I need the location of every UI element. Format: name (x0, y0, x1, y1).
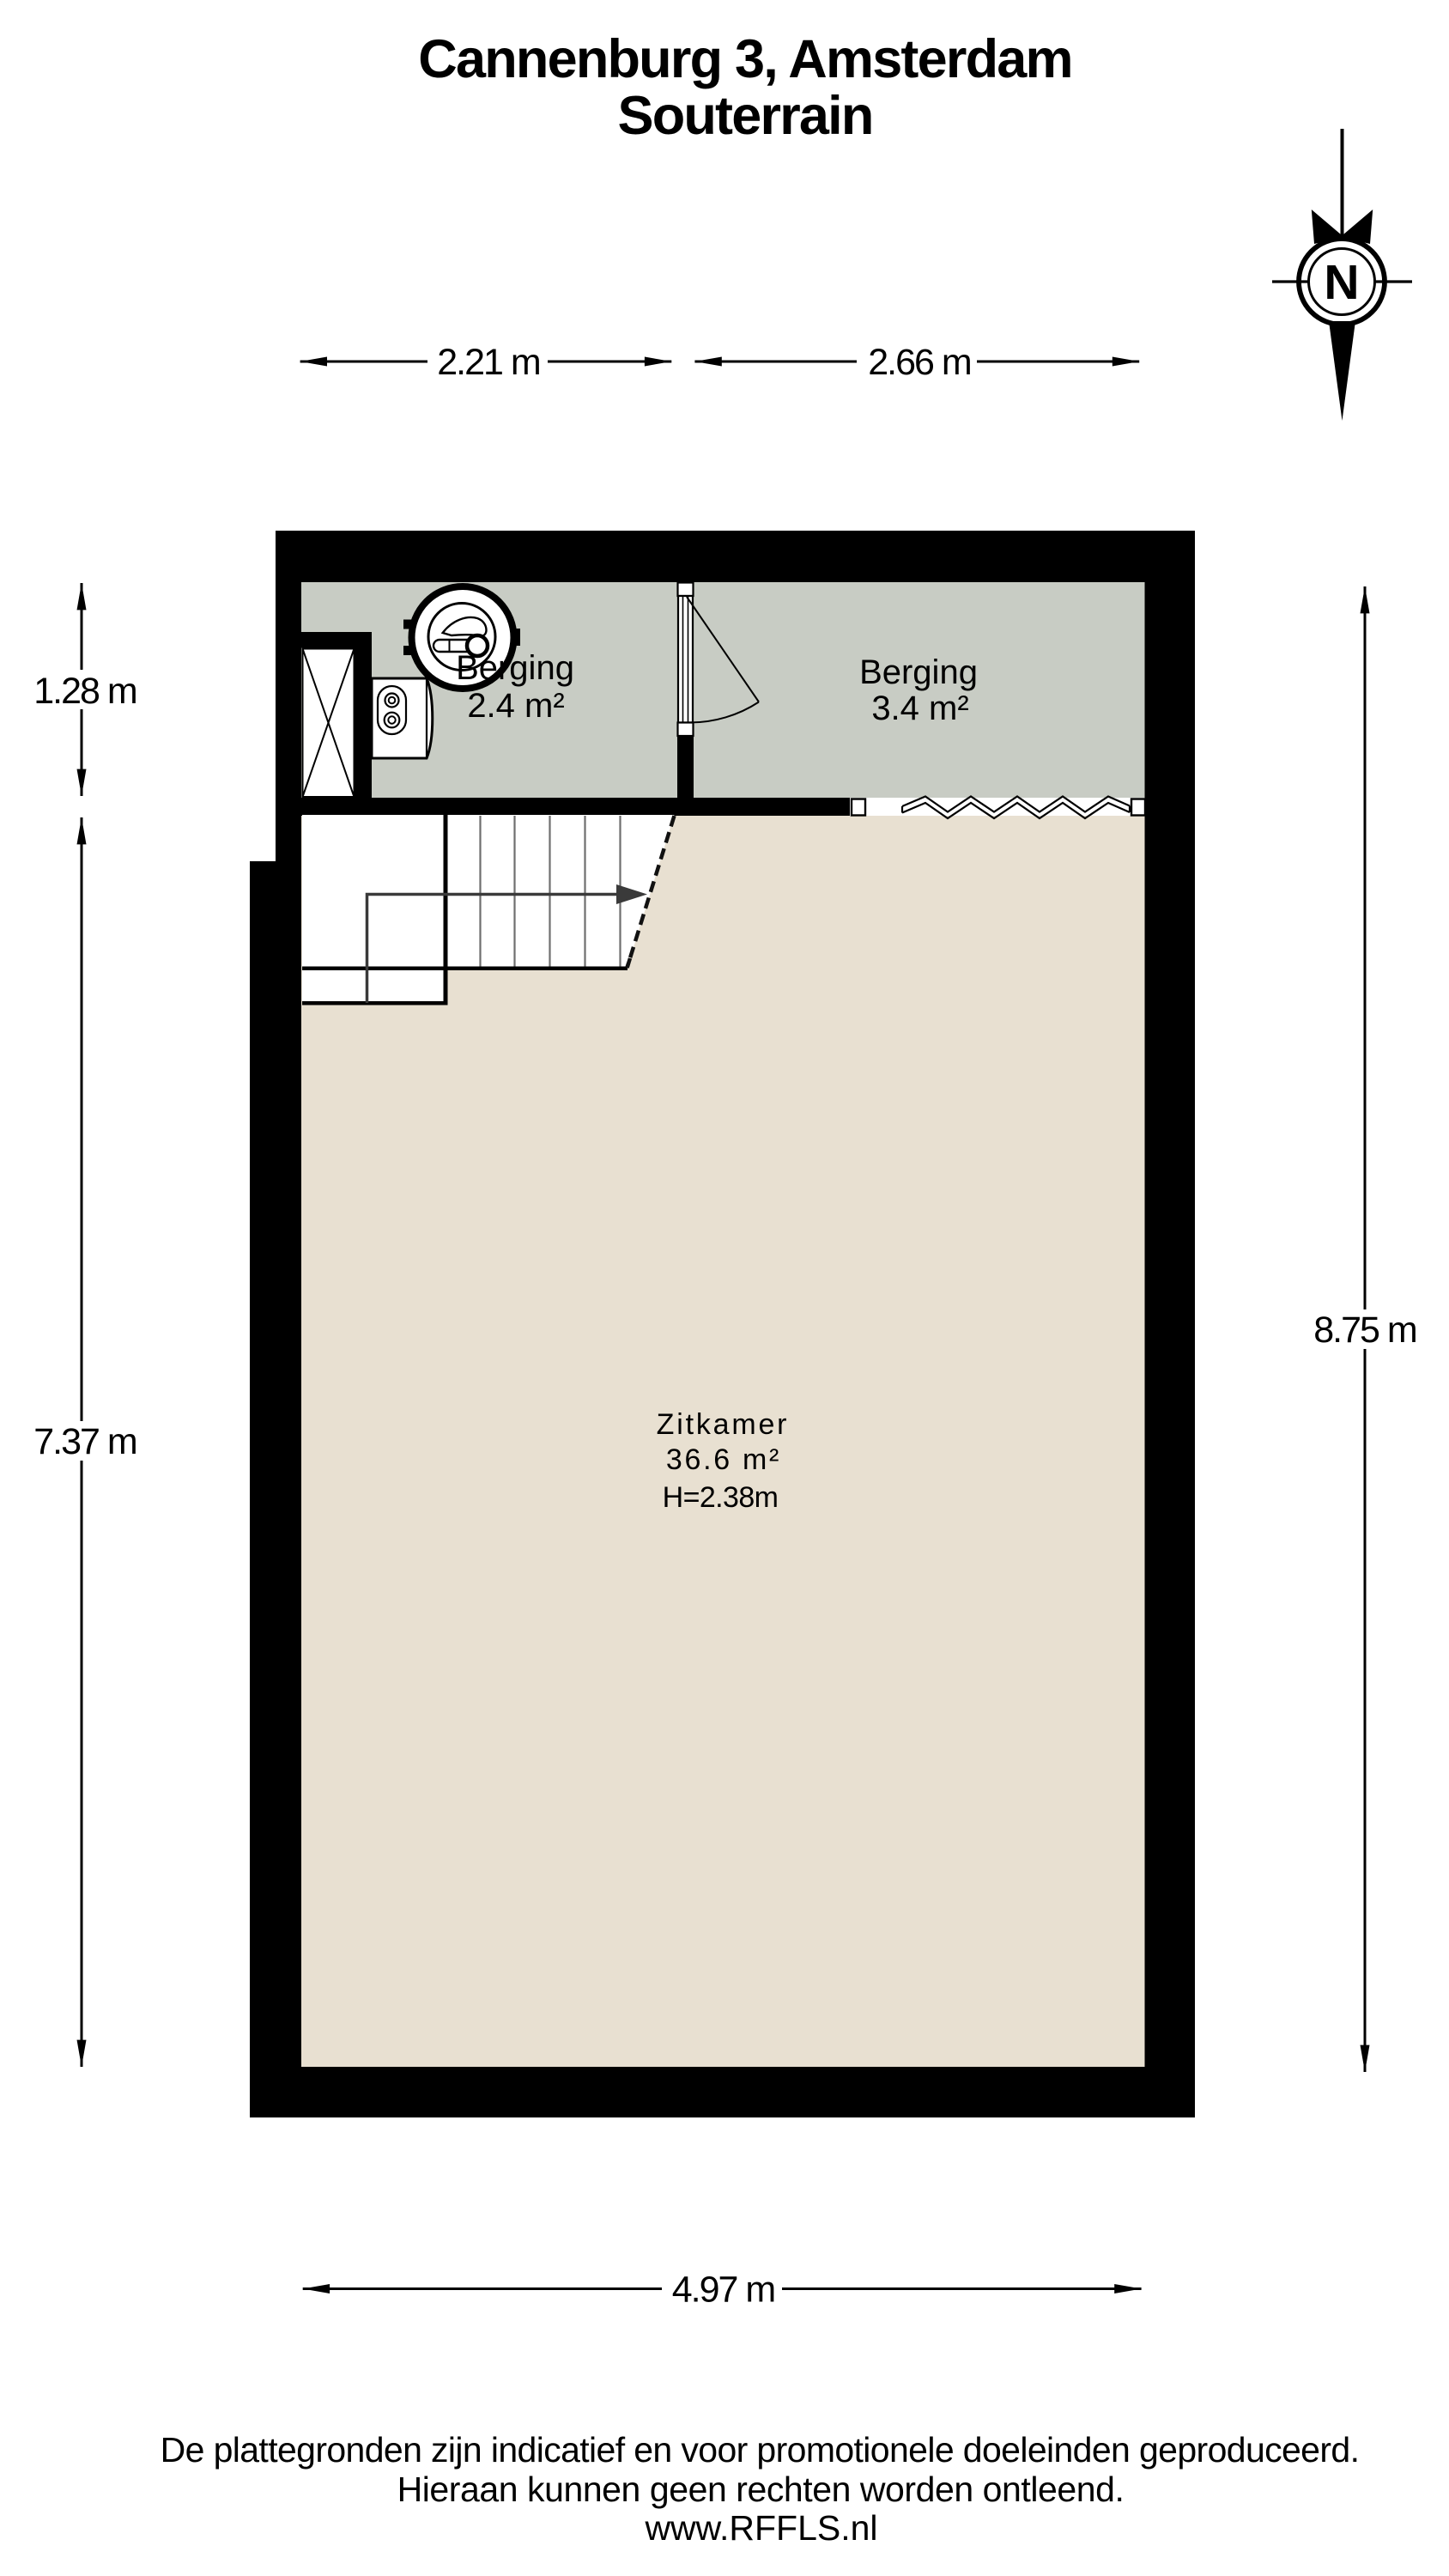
svg-text:1.28 m: 1.28 m (33, 671, 136, 712)
svg-text:Hieraan kunnen geen rechten wo: Hieraan kunnen geen rechten worden ontle… (397, 2470, 1125, 2509)
svg-text:De plattegronden zijn indicati: De plattegronden zijn indicatief en voor… (161, 2430, 1360, 2470)
svg-text:8.75 m: 8.75 m (1313, 1309, 1416, 1351)
svg-text:Berging: Berging (456, 649, 574, 687)
svg-text:2.66 m: 2.66 m (868, 342, 970, 383)
svg-text:Zitkamer: Zitkamer (657, 1408, 790, 1441)
svg-text:Cannenburg 3, Amsterdam: Cannenburg 3, Amsterdam (418, 29, 1071, 89)
svg-text:4.97 m: 4.97 m (672, 2269, 774, 2311)
svg-text:Souterrain: Souterrain (617, 86, 872, 146)
svg-text:2.4 m²: 2.4 m² (467, 687, 564, 725)
svg-text:www.RFFLS.nl: www.RFFLS.nl (644, 2508, 877, 2548)
svg-text:3.4 m²: 3.4 m² (871, 690, 968, 727)
svg-text:H=2.38m: H=2.38m (663, 1481, 779, 1514)
svg-text:N: N (1324, 255, 1359, 310)
svg-text:7.37 m: 7.37 m (33, 1421, 136, 1462)
svg-text:36.6 m²: 36.6 m² (666, 1443, 781, 1476)
svg-text:Berging: Berging (859, 653, 978, 691)
svg-text:2.21 m: 2.21 m (437, 342, 539, 383)
